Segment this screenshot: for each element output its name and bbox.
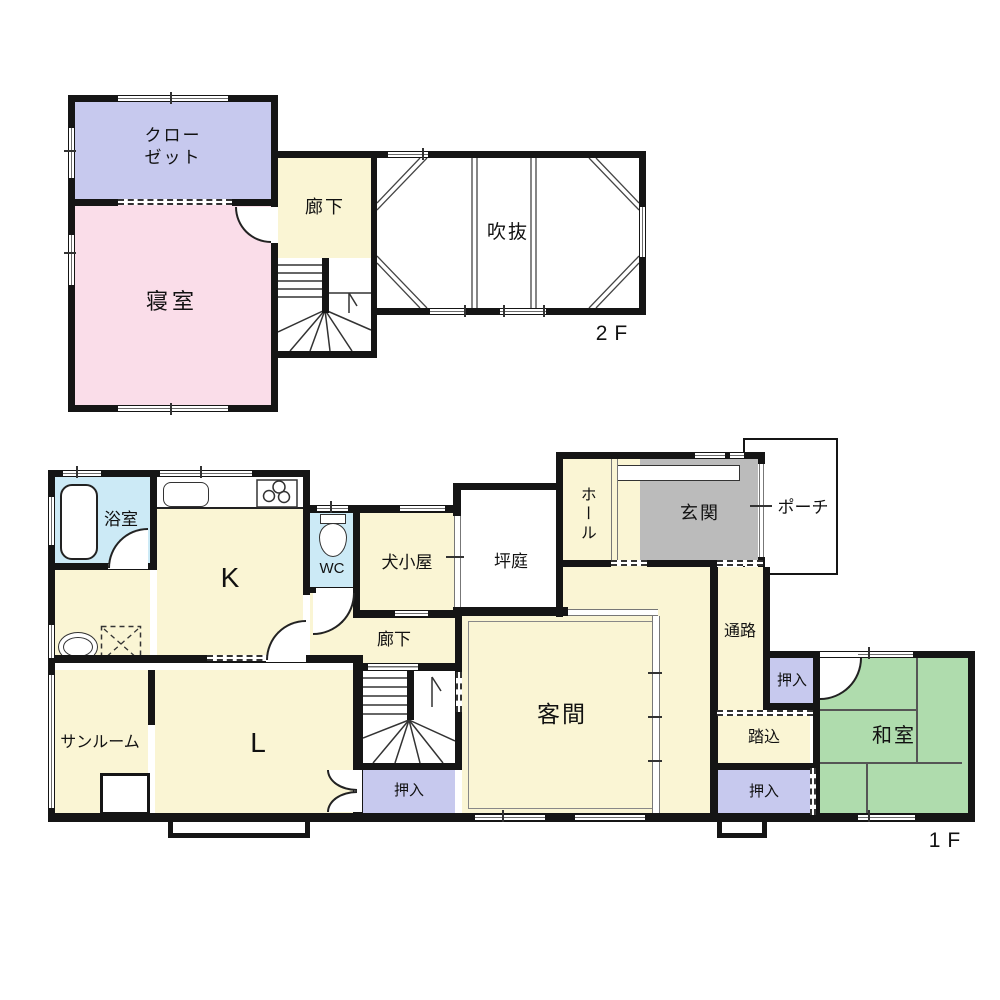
room-label-void: 吹抜 xyxy=(477,221,539,246)
floor-label-1f: 1F xyxy=(918,827,978,854)
room-label-closet: クローゼット xyxy=(123,125,223,169)
window-icon xyxy=(160,471,252,476)
entry-step xyxy=(717,822,767,838)
room-label-courtyard: 坪庭 xyxy=(483,551,539,573)
room-label-bathroom: 浴室 xyxy=(95,509,147,531)
room-label-bedroom: 寝室 xyxy=(122,288,222,317)
room-label-hallway-2f: 廊下 xyxy=(294,196,356,219)
window-icon xyxy=(858,652,913,657)
washbasin-inner xyxy=(63,637,93,657)
room-label-japanese: 和室 xyxy=(862,723,926,749)
stove-icon xyxy=(256,479,298,508)
window-icon xyxy=(63,471,101,476)
room-label-kitchen: K xyxy=(213,560,247,596)
closet-open-boundary xyxy=(118,199,232,205)
bathtub-icon xyxy=(60,484,98,560)
sink-icon xyxy=(163,482,209,507)
window-icon xyxy=(430,309,466,314)
window-icon xyxy=(118,406,228,411)
room-label-passage: 通路 xyxy=(715,622,765,643)
room-label-step-in: 踏込 xyxy=(736,728,792,749)
room-label-entrance: 玄関 xyxy=(671,502,729,525)
sliding-door-icon xyxy=(652,616,660,813)
opening-stairs-guest xyxy=(456,672,462,712)
room-label-doghouse: 犬小屋 xyxy=(379,552,435,574)
tatami-line xyxy=(820,709,917,711)
shoe-cabinet-icon xyxy=(617,465,740,481)
room-label-closet2: 押入 xyxy=(740,782,788,802)
floor-label-2f: 2F xyxy=(585,320,645,347)
stairs-icon xyxy=(363,671,455,763)
entry-step xyxy=(168,822,310,838)
sliding-door-icon xyxy=(568,609,658,616)
hall-step-line xyxy=(611,459,618,560)
window-icon xyxy=(118,96,228,101)
opening-closet2 xyxy=(810,768,816,815)
room-label-sunroom: サンルーム xyxy=(50,733,150,754)
window-icon xyxy=(69,128,74,178)
window-icon xyxy=(69,235,74,285)
opening-step-in xyxy=(717,710,813,716)
window-icon xyxy=(49,497,54,545)
room-label-wc: WC xyxy=(317,559,347,579)
window-icon xyxy=(400,506,445,511)
room-label-closet1: 押入 xyxy=(769,671,815,691)
room-label-guest: 客間 xyxy=(528,700,596,730)
opening-hall xyxy=(611,560,647,566)
room-label-hall: ホール xyxy=(575,482,596,546)
window-icon xyxy=(49,625,54,658)
tatami-line xyxy=(866,762,868,815)
window-icon xyxy=(575,815,645,820)
corridor xyxy=(563,560,710,615)
window-icon xyxy=(317,506,348,511)
room-label-porch: ポーチ xyxy=(770,497,836,519)
room-label-hallway-1f: 廊下 xyxy=(368,629,420,651)
opening-entrance xyxy=(717,560,763,566)
window-icon xyxy=(475,815,545,820)
floor-plan: クローゼット 寝室 廊下 吹抜 2F xyxy=(0,0,1000,1000)
tatami-line xyxy=(820,762,962,764)
window-icon xyxy=(395,611,428,616)
entrance-door-icon xyxy=(759,464,764,557)
window-icon xyxy=(858,815,915,820)
room-courtyard xyxy=(461,490,556,608)
sunroom-storage xyxy=(100,773,150,815)
window-icon xyxy=(500,309,546,314)
room-label-closet3: 押入 xyxy=(385,781,433,801)
window-icon xyxy=(368,664,418,670)
window-icon xyxy=(640,207,645,257)
window-icon xyxy=(695,453,725,458)
room-label-living: L xyxy=(242,725,274,761)
window-icon xyxy=(730,453,744,458)
sliding-door-icon xyxy=(454,516,461,607)
stairs-icon xyxy=(278,258,371,351)
